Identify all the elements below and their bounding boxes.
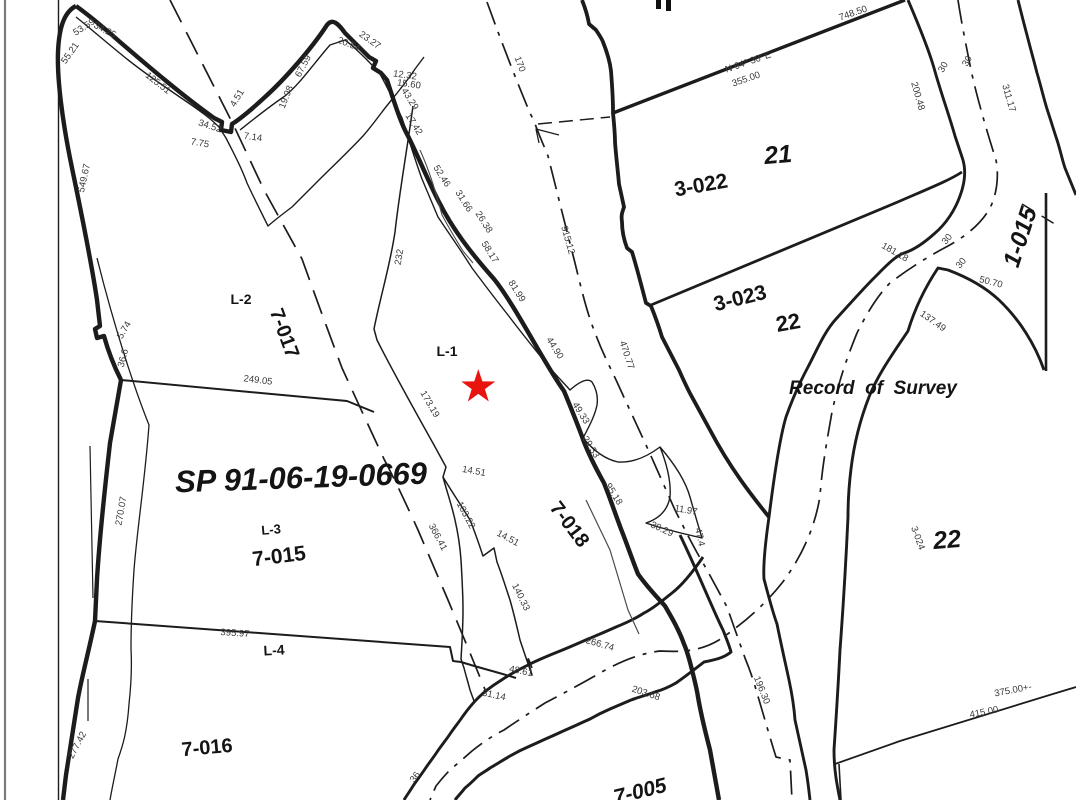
- svg-text:7-016: 7-016: [181, 735, 234, 761]
- svg-text:22: 22: [931, 525, 962, 555]
- svg-text:L-4: L-4: [263, 641, 285, 658]
- svg-text:L-2: L-2: [231, 291, 252, 307]
- svg-text:L-1: L-1: [437, 343, 458, 359]
- svg-text:Record of Survey: Record of Survey: [789, 378, 958, 399]
- svg-text:395.97: 395.97: [220, 627, 250, 640]
- svg-text:22: 22: [774, 308, 802, 337]
- svg-text:L-3: L-3: [261, 521, 282, 538]
- svg-text:21: 21: [762, 140, 793, 170]
